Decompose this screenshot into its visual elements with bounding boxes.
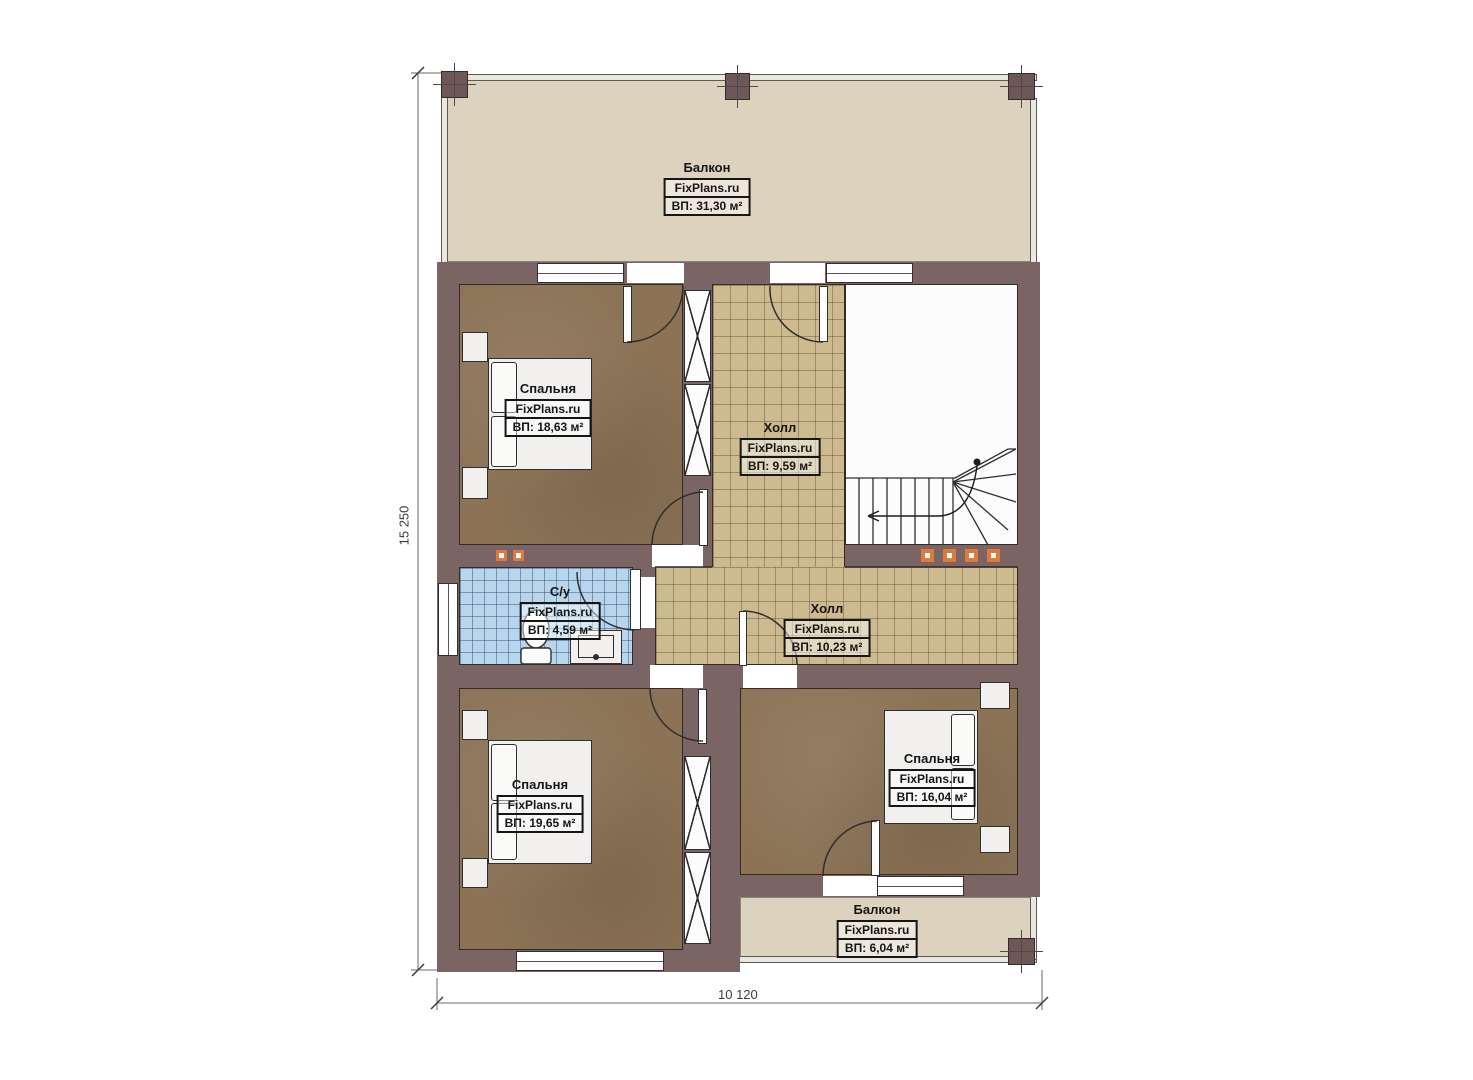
area-box: ВП: 31,30 м² <box>664 196 751 216</box>
wall <box>703 665 743 688</box>
vent-shaft <box>684 384 711 476</box>
room-label-bedroom3: Спальня FixPlans.ru ВП: 16,04 м² <box>889 751 976 807</box>
room-label-hall2: Холл FixPlans.ru ВП: 10,23 м² <box>784 601 871 657</box>
brand-box: FixPlans.ru <box>520 602 601 622</box>
dimension-label-width: 10 120 <box>718 987 758 1002</box>
area-box: ВП: 4,59 м² <box>520 620 601 640</box>
brand-box: FixPlans.ru <box>889 769 976 789</box>
room-name: Спальня <box>889 751 976 766</box>
nightstand <box>980 682 1010 709</box>
window <box>516 951 664 971</box>
room-label-bedroom1: Спальня FixPlans.ru ВП: 18,63 м² <box>505 381 592 437</box>
column <box>1008 938 1035 965</box>
area-box: ВП: 9,59 м² <box>740 456 821 476</box>
room-name: Спальня <box>505 381 592 396</box>
column <box>725 73 750 100</box>
radiator-marker <box>496 550 507 561</box>
wall <box>1018 284 1040 897</box>
brand-box: FixPlans.ru <box>784 619 871 639</box>
floor-plan-canvas: Балкон FixPlans.ru ВП: 31,30 м² Спальня … <box>0 0 1473 1080</box>
vent-shaft <box>684 852 711 944</box>
wall <box>437 262 1040 284</box>
room-label-bedroom2: Спальня FixPlans.ru ВП: 19,65 м² <box>497 777 584 833</box>
door-opening <box>627 263 684 283</box>
radiator-marker <box>921 549 934 562</box>
area-box: ВП: 6,04 м² <box>837 938 918 958</box>
room-name: Балкон <box>837 902 918 917</box>
door-opening <box>650 666 703 687</box>
room-label-hall1: Холл FixPlans.ru ВП: 9,59 м² <box>740 420 821 476</box>
column <box>1008 73 1035 100</box>
door-opening <box>652 546 703 566</box>
door-leaf <box>699 489 708 546</box>
window <box>537 263 624 283</box>
brand-box: FixPlans.ru <box>837 920 918 940</box>
brand-box: FixPlans.ru <box>505 399 592 419</box>
door-leaf <box>698 689 707 744</box>
stairwell-floor <box>845 284 1018 545</box>
door-leaf <box>630 569 641 630</box>
window <box>438 583 458 656</box>
door-opening <box>823 876 877 896</box>
radiator-marker <box>943 549 956 562</box>
window <box>877 876 964 896</box>
area-box: ВП: 18,63 м² <box>505 417 592 437</box>
room-name: Балкон <box>664 160 751 175</box>
room-label-bathroom: С/у FixPlans.ru ВП: 4,59 м² <box>520 584 601 640</box>
door-leaf <box>871 820 880 876</box>
balcony-railing <box>441 80 448 265</box>
door-leaf <box>819 286 828 342</box>
wall <box>459 665 650 688</box>
door-leaf <box>623 286 632 343</box>
column <box>441 71 468 98</box>
wall <box>633 628 655 665</box>
brand-box: FixPlans.ru <box>497 795 584 815</box>
balcony-railing <box>1030 98 1037 265</box>
wall <box>703 545 712 567</box>
dimension-label-height: 15 250 <box>396 506 411 546</box>
nightstand <box>462 332 488 362</box>
door-leaf <box>739 611 747 666</box>
door-opening <box>770 263 825 283</box>
nightstand <box>462 858 488 888</box>
wall <box>459 545 652 567</box>
nightstand <box>462 467 488 499</box>
window <box>826 263 913 283</box>
room-name: Спальня <box>497 777 584 792</box>
nightstand <box>980 826 1010 853</box>
door-opening <box>743 666 797 687</box>
room-name: Холл <box>784 601 871 616</box>
area-box: ВП: 16,04 м² <box>889 787 976 807</box>
radiator-marker <box>513 550 524 561</box>
area-box: ВП: 19,65 м² <box>497 813 584 833</box>
room-name: С/у <box>520 584 601 599</box>
room-name: Холл <box>740 420 821 435</box>
radiator-marker <box>987 549 1000 562</box>
radiator-marker <box>965 549 978 562</box>
nightstand <box>462 710 488 740</box>
wall <box>712 665 740 950</box>
room-label-balcony-bottom: Балкон FixPlans.ru ВП: 6,04 м² <box>837 902 918 958</box>
room-label-balcony-top: Балкон FixPlans.ru ВП: 31,30 м² <box>664 160 751 216</box>
vent-shaft <box>684 290 711 382</box>
vent-shaft <box>684 756 711 850</box>
brand-box: FixPlans.ru <box>740 438 821 458</box>
sink-drain <box>593 654 599 660</box>
area-box: ВП: 10,23 м² <box>784 637 871 657</box>
brand-box: FixPlans.ru <box>664 178 751 198</box>
